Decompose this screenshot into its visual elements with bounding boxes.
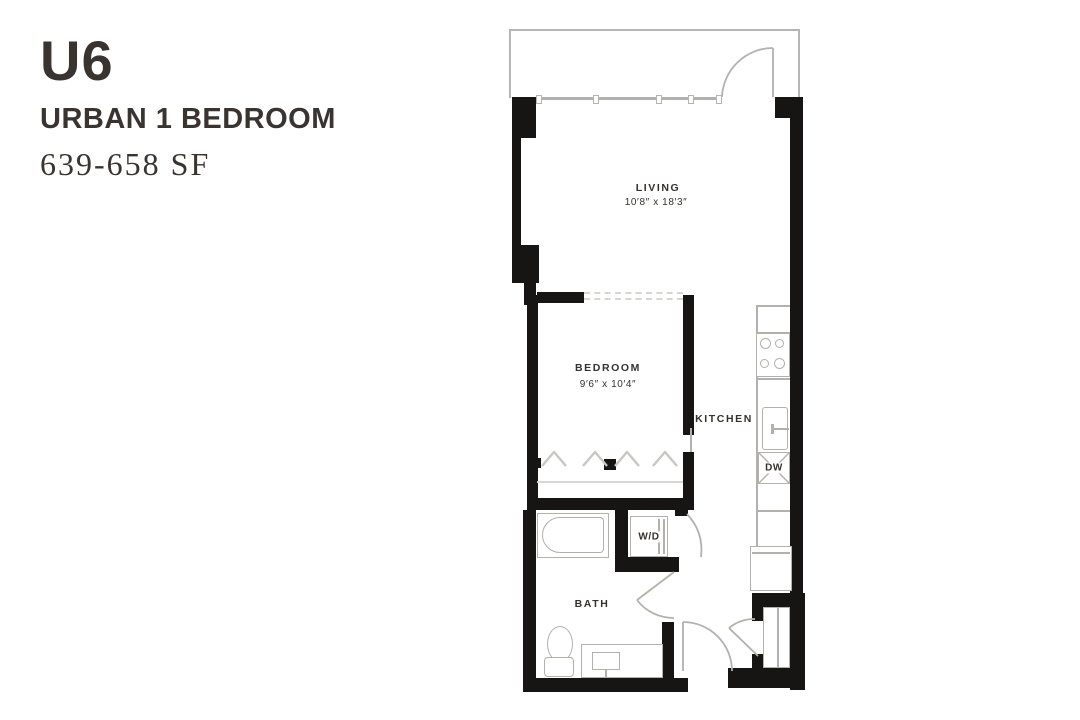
unit-type: URBAN 1 BEDROOM xyxy=(40,103,336,136)
vanity-faucet xyxy=(605,669,607,677)
cooktop-burner xyxy=(775,339,784,348)
bath-door-swing xyxy=(637,600,674,618)
wall-segment xyxy=(662,622,674,678)
balcony-outline xyxy=(509,29,800,98)
wall-segment xyxy=(537,292,584,303)
wall-segment xyxy=(527,498,694,510)
wall-segment xyxy=(512,97,536,138)
window-mullion-tick xyxy=(536,95,542,104)
wall-segment xyxy=(527,458,541,468)
wd-door-swing xyxy=(687,514,701,557)
wall-segment xyxy=(615,557,679,572)
counter-divider xyxy=(756,378,790,380)
floor-plan-sheet: U6 URBAN 1 BEDROOM 639-658 SF xyxy=(0,0,1080,720)
closet-chevron xyxy=(653,452,677,466)
entry-door-swing xyxy=(683,622,732,671)
wall-segment xyxy=(523,678,688,692)
washer-dryer-door-line xyxy=(663,519,665,554)
kitchen-faucet xyxy=(772,428,789,430)
wall-segment xyxy=(752,654,763,670)
wall-segment xyxy=(512,138,521,248)
bath-label: BATH xyxy=(575,598,610,610)
wall-segment xyxy=(683,295,694,435)
bedroom-dimensions: 9′6″ x 10′4″ xyxy=(580,379,636,390)
toilet-tank xyxy=(544,657,574,677)
dishwasher-label: DW xyxy=(763,463,785,474)
wall-segment xyxy=(675,510,688,516)
living-room-dimensions: 10′8″ x 18′3″ xyxy=(625,197,688,208)
closet-chevron xyxy=(615,452,639,466)
cooktop-burner xyxy=(760,359,769,368)
bath-door-leaf xyxy=(637,572,674,600)
bedroom-sliding-door xyxy=(584,298,683,300)
unit-code: U6 xyxy=(40,28,114,93)
wall-segment xyxy=(512,245,539,283)
closet-door-leaf xyxy=(729,628,758,656)
window-mullion-tick xyxy=(716,95,722,104)
bathtub-basin xyxy=(542,517,604,553)
refrigerator-line xyxy=(752,552,790,554)
entry-closet-rod xyxy=(777,607,779,668)
closet-back-line xyxy=(537,481,683,483)
vanity-sink xyxy=(592,652,620,670)
window-mullion-tick xyxy=(688,95,694,104)
wall-segment xyxy=(752,607,763,621)
counter-divider xyxy=(756,510,790,512)
kitchen-faucet xyxy=(771,424,774,434)
wall-segment xyxy=(523,510,536,692)
bedroom-label: BEDROOM xyxy=(575,362,641,374)
bedroom-sliding-door xyxy=(584,292,683,294)
cooktop-burner xyxy=(774,358,785,369)
wall-segment xyxy=(790,607,805,690)
unit-square-footage: 639-658 SF xyxy=(40,146,210,183)
counter-edge xyxy=(756,305,790,307)
bedroom-opening-jamb xyxy=(690,428,692,452)
living-room-label: LIVING xyxy=(636,182,681,194)
wall-segment xyxy=(775,97,803,118)
window-mullion-tick xyxy=(593,95,599,104)
window-mullion-tick xyxy=(656,95,662,104)
wall-segment xyxy=(604,459,616,470)
wall-segment xyxy=(752,593,805,607)
wall-segment xyxy=(790,118,803,593)
closet-chevron xyxy=(542,452,566,466)
washer-dryer-label: W/D xyxy=(636,532,661,543)
kitchen-label: KITCHEN xyxy=(695,413,753,425)
cooktop-burner xyxy=(760,338,771,349)
wall-segment xyxy=(527,295,538,510)
